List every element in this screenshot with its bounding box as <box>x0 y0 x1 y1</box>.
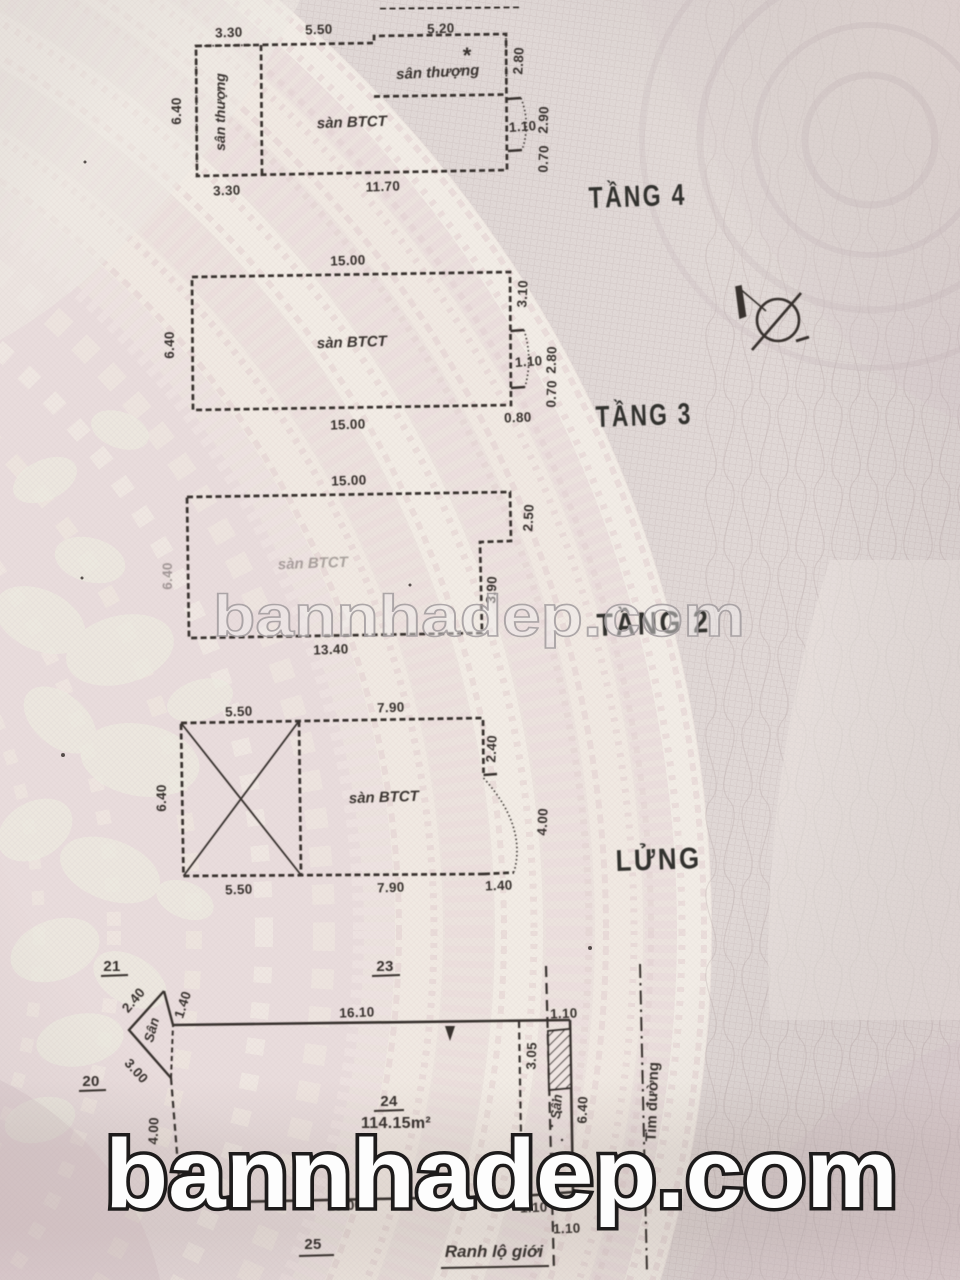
svg-text:7.90: 7.90 <box>377 700 405 716</box>
svg-text:20: 20 <box>82 1073 99 1090</box>
svg-text:6.40: 6.40 <box>154 784 169 811</box>
svg-text:bannhadep.com: bannhadep.com <box>105 1119 898 1228</box>
svg-text:15.00: 15.00 <box>330 416 366 432</box>
svg-text:23: 23 <box>376 958 393 975</box>
svg-text:6.40: 6.40 <box>162 331 177 358</box>
svg-text:sàn BTCT: sàn BTCT <box>349 788 421 807</box>
svg-text:bannhadep.com: bannhadep.com <box>213 584 745 649</box>
svg-text:5.50: 5.50 <box>225 882 253 898</box>
svg-text:2.90: 2.90 <box>536 106 552 134</box>
svg-text:sân thượng: sân thượng <box>212 73 228 151</box>
svg-text:1.10: 1.10 <box>508 118 536 135</box>
svg-text:Ranh lộ giới: Ranh lộ giới <box>445 1242 545 1261</box>
svg-text:0.80: 0.80 <box>504 410 532 426</box>
svg-text:3.10: 3.10 <box>514 280 530 308</box>
svg-text:sàn BTCT: sàn BTCT <box>278 554 350 573</box>
svg-text:24: 24 <box>380 1093 398 1110</box>
svg-text:5.50: 5.50 <box>225 704 253 720</box>
svg-text:3.30: 3.30 <box>215 25 243 41</box>
svg-text:Sân: Sân <box>548 1094 565 1120</box>
svg-text:sàn BTCT: sàn BTCT <box>317 113 389 132</box>
svg-text:16.10: 16.10 <box>339 1004 375 1020</box>
svg-text:25: 25 <box>304 1236 321 1253</box>
svg-text:2.40: 2.40 <box>483 735 499 763</box>
svg-text:6.40: 6.40 <box>160 562 175 589</box>
svg-text:3.05: 3.05 <box>524 1042 540 1070</box>
svg-text:2.50: 2.50 <box>520 504 536 532</box>
svg-text:3.30: 3.30 <box>213 183 241 199</box>
svg-text:sàn BTCT: sàn BTCT <box>317 333 389 352</box>
svg-text:15.00: 15.00 <box>331 472 367 488</box>
svg-text:11.70: 11.70 <box>365 178 400 194</box>
svg-text:2.80: 2.80 <box>544 346 560 374</box>
svg-text:7.90: 7.90 <box>377 880 405 896</box>
svg-text:0.70: 0.70 <box>536 145 552 173</box>
svg-text:4.00: 4.00 <box>534 808 550 836</box>
svg-text:1.40: 1.40 <box>485 878 513 894</box>
svg-text:5.20: 5.20 <box>427 21 455 37</box>
svg-text:0.70: 0.70 <box>544 380 560 408</box>
svg-text:TẦNG 3: TẦNG 3 <box>595 397 693 434</box>
svg-text:5.50: 5.50 <box>305 22 333 38</box>
svg-text:6.40: 6.40 <box>169 97 184 124</box>
svg-text:21: 21 <box>103 958 120 975</box>
svg-text:*: * <box>463 43 472 68</box>
svg-text:15.00: 15.00 <box>330 252 366 268</box>
svg-text:1.10: 1.10 <box>550 1006 578 1022</box>
svg-text:LỬNG: LỬNG <box>615 841 702 878</box>
svg-text:TẦNG 4: TẦNG 4 <box>588 178 687 215</box>
svg-text:1.10: 1.10 <box>514 353 542 370</box>
svg-text:2.80: 2.80 <box>510 47 526 75</box>
